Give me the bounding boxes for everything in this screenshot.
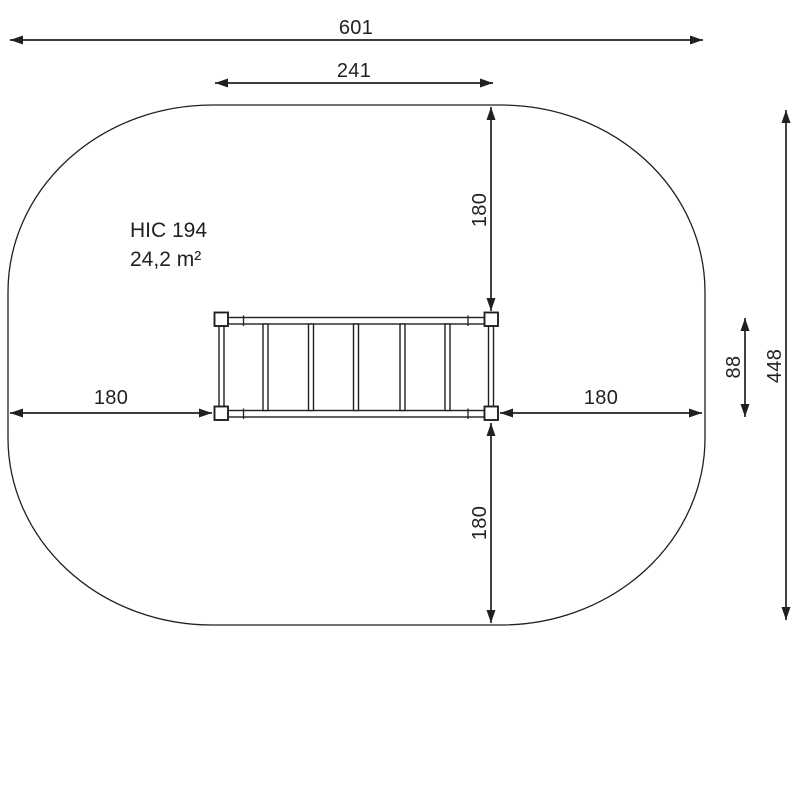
dimension-top-clearance-label: 180 xyxy=(469,193,491,227)
dimension-total-width-label: 601 xyxy=(339,17,373,39)
technical-plan-svg: 601 241 180 180 180 180 88 xyxy=(0,0,800,800)
ladder-right-side-tube xyxy=(489,326,494,407)
ladder-rung-4 xyxy=(400,324,405,411)
ladder-bottom-rail xyxy=(228,411,485,418)
dimension-bottom-clearance: 180 xyxy=(469,423,491,623)
hic-label: HIC 194 xyxy=(130,219,207,242)
ladder-post-top-right xyxy=(485,313,499,327)
dimension-inner-width: 241 xyxy=(215,60,493,83)
area-annotation: HIC 194 24,2 m² xyxy=(130,219,207,271)
dimension-inner-width-label: 241 xyxy=(337,60,371,82)
dimension-top-clearance: 180 xyxy=(469,107,491,311)
ladder-rung-2 xyxy=(309,324,314,411)
dimension-left-clearance-label: 180 xyxy=(94,387,128,409)
ladder-left-side-tube xyxy=(219,326,224,407)
ladder-rung-3 xyxy=(354,324,359,411)
safety-zone-drawing: 601 241 180 180 180 180 88 xyxy=(0,0,800,800)
area-label: 24,2 m² xyxy=(130,248,201,271)
dimension-right-clearance: 180 xyxy=(500,387,702,413)
ladder-equipment xyxy=(215,313,499,421)
ladder-post-top-left xyxy=(215,313,229,327)
dimension-right-clearance-label: 180 xyxy=(584,387,618,409)
dimension-bottom-clearance-label: 180 xyxy=(469,506,491,540)
dimension-left-clearance: 180 xyxy=(10,387,212,413)
dimension-total-width: 601 xyxy=(10,17,703,40)
dimension-equipment-depth: 88 xyxy=(723,318,745,417)
ladder-rung-1 xyxy=(263,324,268,411)
dimension-total-depth-label: 448 xyxy=(764,349,786,383)
ladder-rung-5 xyxy=(445,324,450,411)
dimension-total-depth: 448 xyxy=(764,110,786,620)
ladder-post-bottom-left xyxy=(215,407,229,421)
ladder-post-bottom-right xyxy=(485,407,499,421)
dimension-equipment-depth-label: 88 xyxy=(723,356,745,379)
ladder-top-rail xyxy=(228,318,485,325)
